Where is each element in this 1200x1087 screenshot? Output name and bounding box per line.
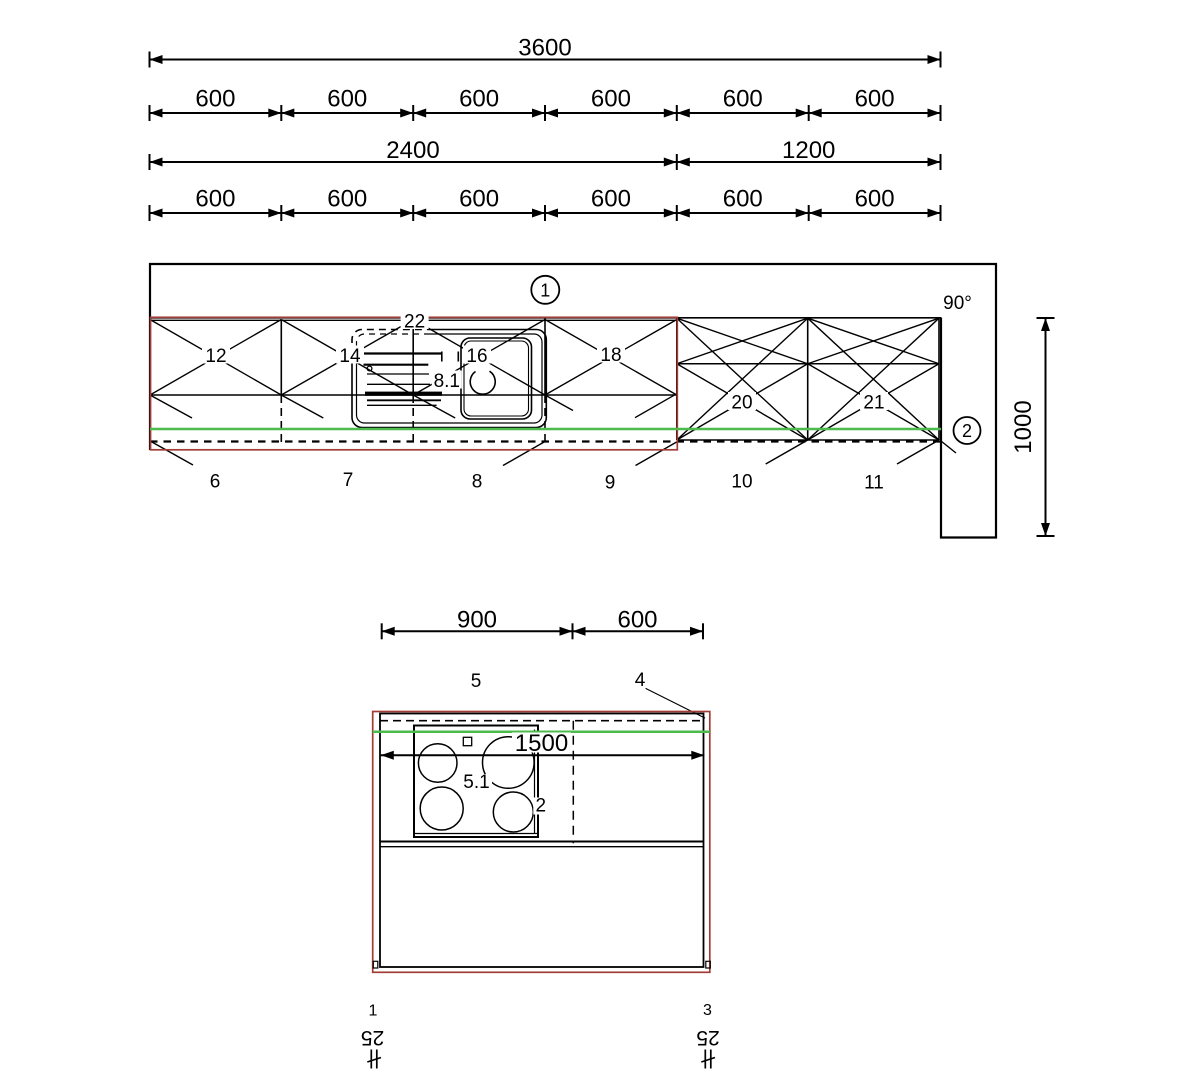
svg-text:5.1: 5.1 — [463, 772, 489, 793]
svg-text:600: 600 — [327, 186, 367, 213]
svg-text:600: 600 — [855, 186, 895, 213]
svg-text:21: 21 — [863, 393, 884, 414]
svg-text:7: 7 — [343, 470, 354, 491]
svg-text:600: 600 — [723, 86, 763, 113]
svg-text:90°: 90° — [943, 293, 972, 314]
svg-text:1000: 1000 — [1010, 400, 1037, 453]
svg-text:9: 9 — [605, 473, 616, 494]
svg-text:20: 20 — [731, 393, 752, 414]
svg-text:11: 11 — [864, 473, 884, 494]
svg-text:600: 600 — [723, 186, 763, 213]
svg-text:2: 2 — [962, 421, 972, 441]
svg-text:600: 600 — [855, 86, 895, 113]
svg-text:900: 900 — [457, 606, 497, 633]
svg-text:14: 14 — [339, 346, 361, 367]
svg-text:600: 600 — [459, 86, 499, 113]
svg-text:600: 600 — [617, 606, 657, 633]
svg-text:10: 10 — [731, 472, 752, 493]
svg-text:12: 12 — [205, 346, 226, 367]
svg-text:1500: 1500 — [515, 730, 568, 757]
svg-text:22: 22 — [404, 312, 425, 333]
svg-text:3600: 3600 — [518, 35, 571, 62]
svg-text:8: 8 — [472, 472, 483, 493]
svg-text:600: 600 — [327, 86, 367, 113]
svg-text:2: 2 — [536, 796, 547, 817]
svg-text:18: 18 — [600, 345, 621, 366]
svg-text:1: 1 — [369, 1003, 378, 1020]
svg-text:600: 600 — [459, 186, 499, 213]
svg-text:16: 16 — [466, 346, 487, 367]
svg-text:600: 600 — [591, 186, 631, 213]
svg-text:6: 6 — [210, 472, 221, 493]
svg-text:25: 25 — [696, 1026, 719, 1049]
svg-text:600: 600 — [591, 86, 631, 113]
svg-text:25: 25 — [361, 1026, 384, 1049]
svg-text:600: 600 — [195, 186, 235, 213]
svg-text:1200: 1200 — [782, 137, 835, 164]
svg-text:1: 1 — [540, 280, 550, 300]
svg-text:4: 4 — [635, 670, 646, 691]
svg-text:5: 5 — [471, 671, 482, 692]
svg-text:2400: 2400 — [386, 137, 439, 164]
svg-text:600: 600 — [195, 86, 235, 113]
svg-text:8.1: 8.1 — [434, 371, 460, 392]
svg-text:3: 3 — [703, 1002, 712, 1019]
